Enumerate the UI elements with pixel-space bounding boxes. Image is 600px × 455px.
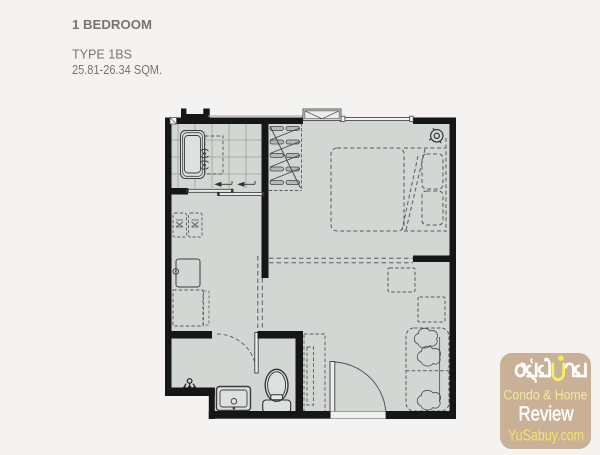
svg-text:25.81-26.34 SQM.: 25.81-26.34 SQM. bbox=[72, 62, 162, 77]
svg-text:Condo & Home: Condo & Home bbox=[504, 388, 588, 403]
svg-text:YuSabuy.com: YuSabuy.com bbox=[508, 428, 584, 445]
svg-text:Review: Review bbox=[519, 404, 574, 426]
svg-text:1 BEDROOM: 1 BEDROOM bbox=[72, 17, 152, 32]
svg-text:TYPE 1BS: TYPE 1BS bbox=[72, 47, 132, 62]
